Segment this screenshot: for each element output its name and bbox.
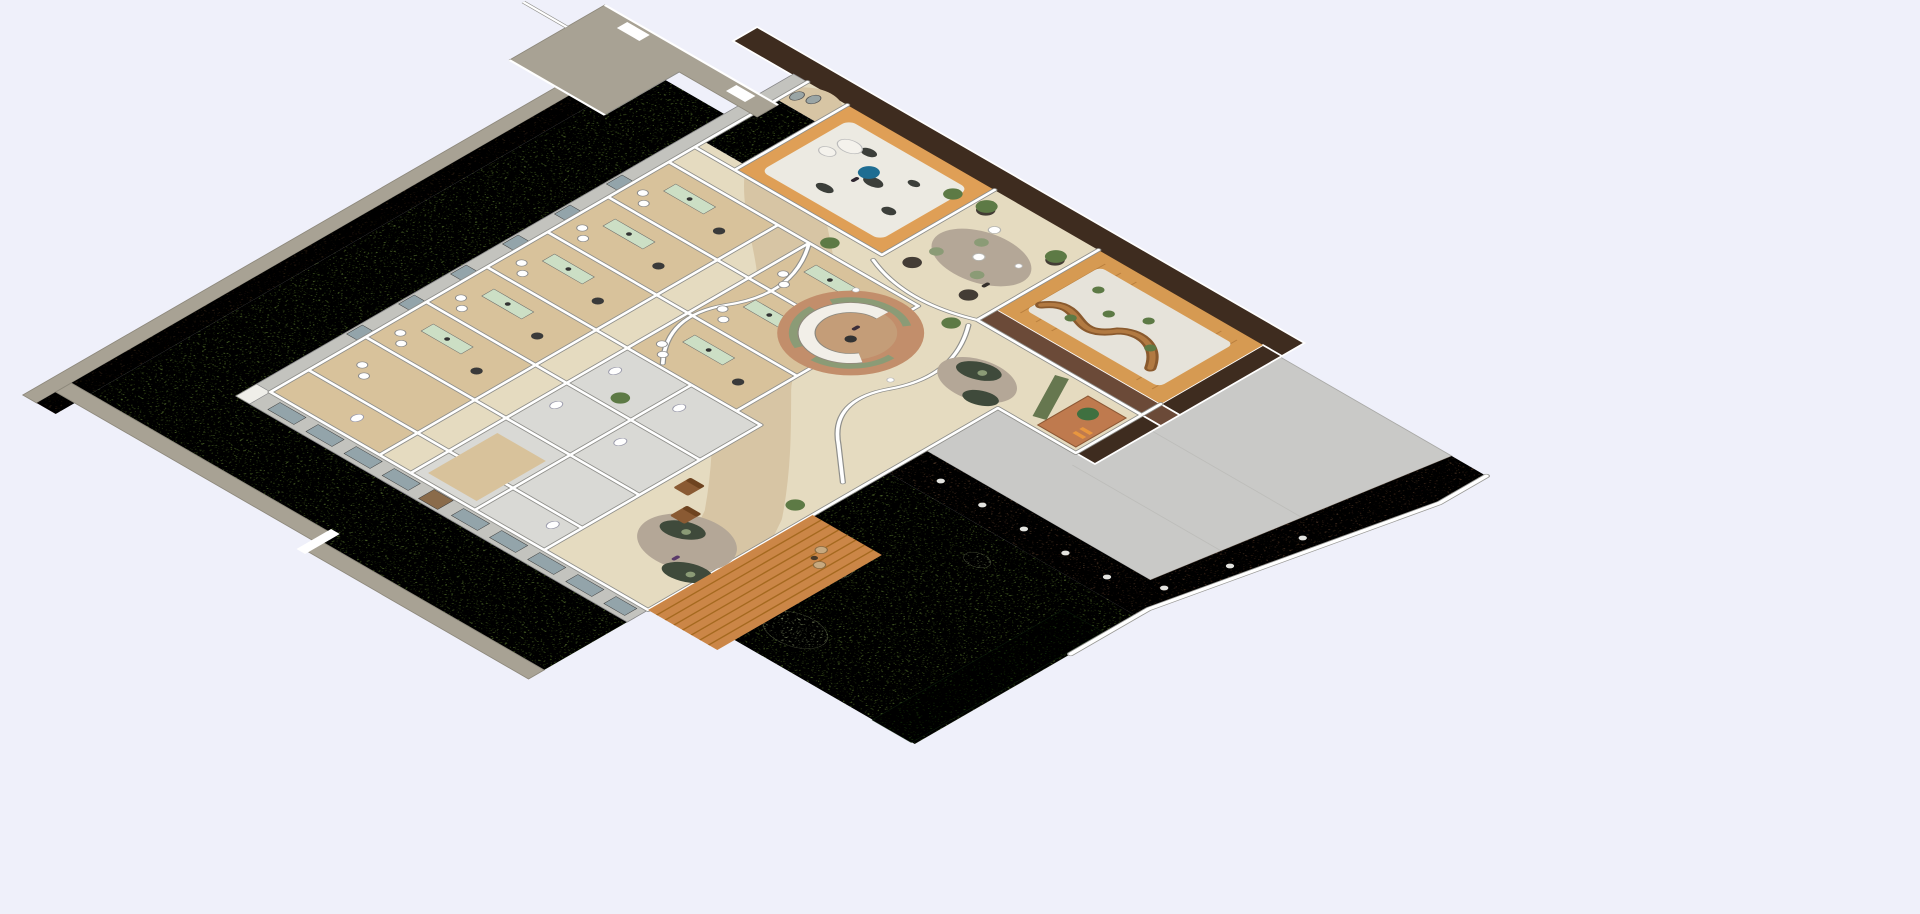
isometric-scene [0,0,1920,914]
floor-plan-render [0,0,1920,914]
